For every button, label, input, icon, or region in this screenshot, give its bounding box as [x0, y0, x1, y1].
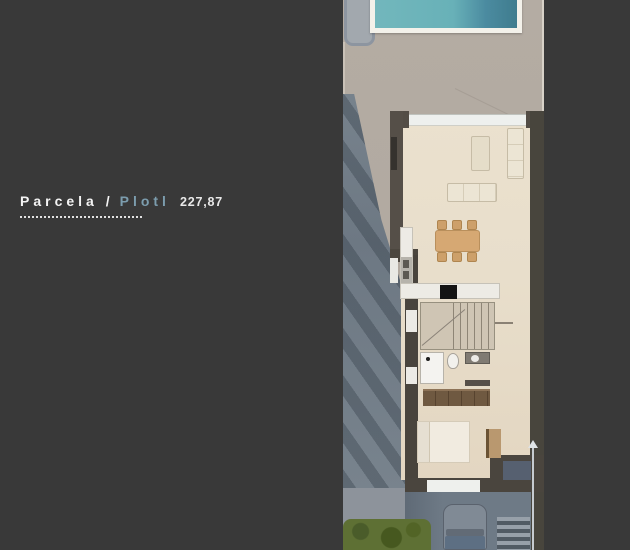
- label-plot: Plotl: [120, 193, 170, 209]
- sliding-glass-door: [408, 114, 527, 126]
- entry-steps: [497, 517, 530, 550]
- window-bathroom: [406, 367, 417, 384]
- dining-chair: [467, 252, 477, 262]
- shower-drain: [426, 357, 430, 361]
- corner-shadow: [503, 461, 531, 480]
- boundary-arrow-icon: [528, 440, 538, 448]
- swimming-pool: [375, 0, 517, 28]
- sink-basin: [403, 271, 409, 279]
- dining-chair: [437, 220, 447, 230]
- boundary-wall-right: [542, 0, 544, 112]
- sink-basin: [403, 260, 409, 268]
- window-living: [391, 137, 397, 170]
- armchair: [471, 136, 490, 171]
- boundary-marker-line: [532, 448, 534, 550]
- pool-deck: [370, 0, 522, 33]
- plot-area-label: Parcela / Plotl 227,87: [20, 193, 223, 218]
- stair-treads: [447, 303, 494, 349]
- label-parcela: Parcela /: [20, 193, 114, 209]
- bed-pillows: [418, 422, 430, 462]
- kitchen-sink: [401, 257, 412, 283]
- site-plan-render: [343, 0, 544, 550]
- washbasin: [471, 355, 479, 362]
- dining-chair: [437, 252, 447, 262]
- dining-table: [435, 230, 480, 252]
- dining-chair: [467, 220, 477, 230]
- toilet: [447, 353, 459, 369]
- page: { "label": { "primary": "Parcela /", "se…: [0, 0, 630, 550]
- bathroom-wall: [465, 380, 490, 386]
- dresser: [486, 429, 501, 458]
- window-stair: [406, 310, 417, 332]
- dotted-underline: [20, 216, 142, 218]
- plot-area-label-row: Parcela / Plotl 227,87: [20, 193, 223, 209]
- garden-bushes: [343, 519, 431, 550]
- cooktop: [440, 285, 457, 299]
- sofa-side: [507, 128, 524, 179]
- stair-railing: [495, 322, 513, 324]
- car-hood: [445, 536, 485, 549]
- parked-car: [443, 504, 487, 550]
- dining-chair: [452, 220, 462, 230]
- car-windshield: [446, 529, 484, 536]
- sofa-main: [447, 183, 497, 202]
- bathroom-vanity: [465, 352, 490, 364]
- staircase: [420, 302, 495, 350]
- bedroom-window: [427, 480, 480, 492]
- wardrobe: [423, 389, 490, 406]
- shower: [420, 352, 444, 384]
- label-area-value: 227,87: [180, 195, 223, 209]
- window-kitchen: [390, 258, 398, 283]
- dining-chair: [452, 252, 462, 262]
- bed: [417, 421, 470, 463]
